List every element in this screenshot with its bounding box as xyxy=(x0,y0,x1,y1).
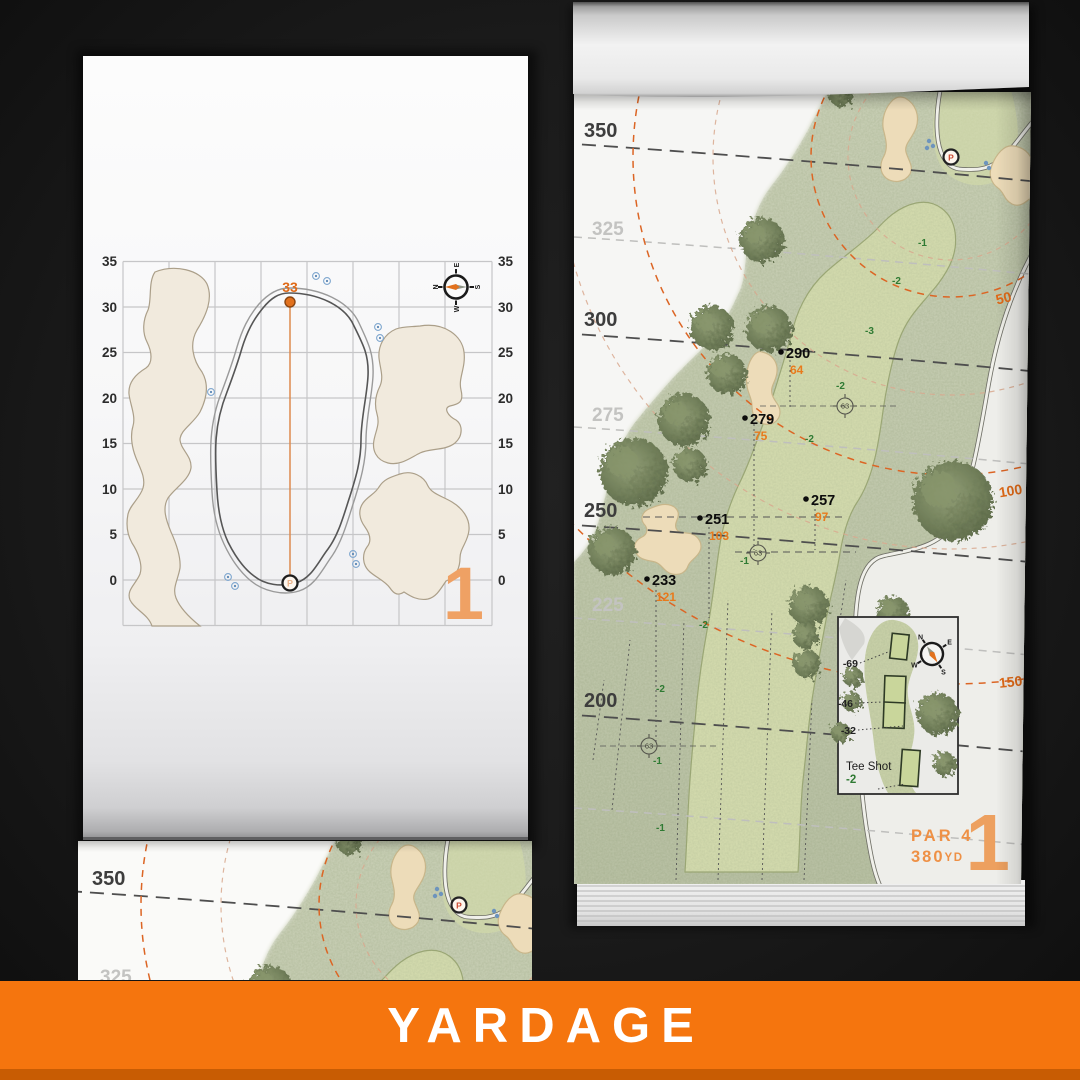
svg-text:N: N xyxy=(433,284,440,289)
svg-text:10: 10 xyxy=(498,482,513,497)
svg-text:25: 25 xyxy=(102,345,118,360)
svg-text:S: S xyxy=(475,284,482,289)
svg-text:25: 25 xyxy=(498,345,514,360)
svg-text:1: 1 xyxy=(443,552,484,635)
svg-text:33: 33 xyxy=(282,279,298,295)
svg-text:E: E xyxy=(454,262,461,267)
svg-text:0: 0 xyxy=(109,573,117,588)
svg-text:30: 30 xyxy=(102,300,117,315)
svg-text:30: 30 xyxy=(498,300,513,315)
svg-text:35: 35 xyxy=(498,254,514,269)
svg-text:W: W xyxy=(454,305,461,312)
svg-text:15: 15 xyxy=(498,436,514,451)
svg-text:YARDAGE: YARDAGE xyxy=(387,999,705,1053)
svg-text:0: 0 xyxy=(498,573,506,588)
svg-text:P: P xyxy=(287,579,293,589)
svg-text:5: 5 xyxy=(498,527,506,542)
svg-text:20: 20 xyxy=(102,391,117,406)
svg-text:15: 15 xyxy=(102,436,118,451)
svg-text:10: 10 xyxy=(102,482,117,497)
svg-text:5: 5 xyxy=(109,527,117,542)
svg-text:35: 35 xyxy=(102,254,118,269)
svg-text:20: 20 xyxy=(498,391,513,406)
